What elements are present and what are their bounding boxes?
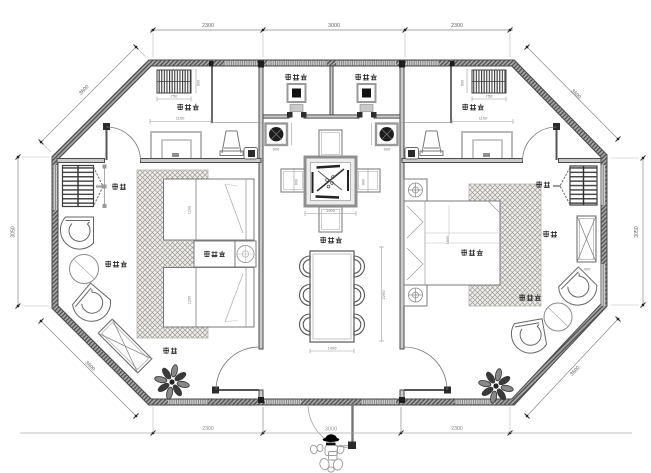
svg-text:600: 600 [461,80,465,86]
svg-text:3050: 3050 [634,226,640,238]
svg-text:600: 600 [295,179,299,185]
svg-text:400: 400 [584,267,591,272]
svg-text:1400: 1400 [328,346,338,351]
svg-text:2260: 2260 [381,290,386,300]
svg-text:600: 600 [362,179,366,185]
svg-text:3000: 3000 [328,23,340,29]
svg-text:600: 600 [197,80,201,86]
svg-text:3000: 3000 [325,427,337,433]
svg-text:750: 750 [171,94,178,99]
svg-text:2300: 2300 [202,426,214,432]
svg-text:600: 600 [384,147,391,152]
svg-text:1200: 1200 [188,206,192,214]
svg-text:750: 750 [486,94,493,99]
svg-text:2300: 2300 [202,23,214,29]
svg-text:3050: 3050 [11,226,17,238]
svg-text:600: 600 [273,147,280,152]
svg-text:1150: 1150 [176,116,185,121]
svg-text:1000: 1000 [326,208,336,213]
svg-text:1150: 1150 [479,116,488,121]
svg-text:1800: 1800 [446,236,450,244]
svg-text:2300: 2300 [451,426,463,432]
svg-text:1200: 1200 [188,296,192,304]
svg-text:2300: 2300 [451,23,463,29]
